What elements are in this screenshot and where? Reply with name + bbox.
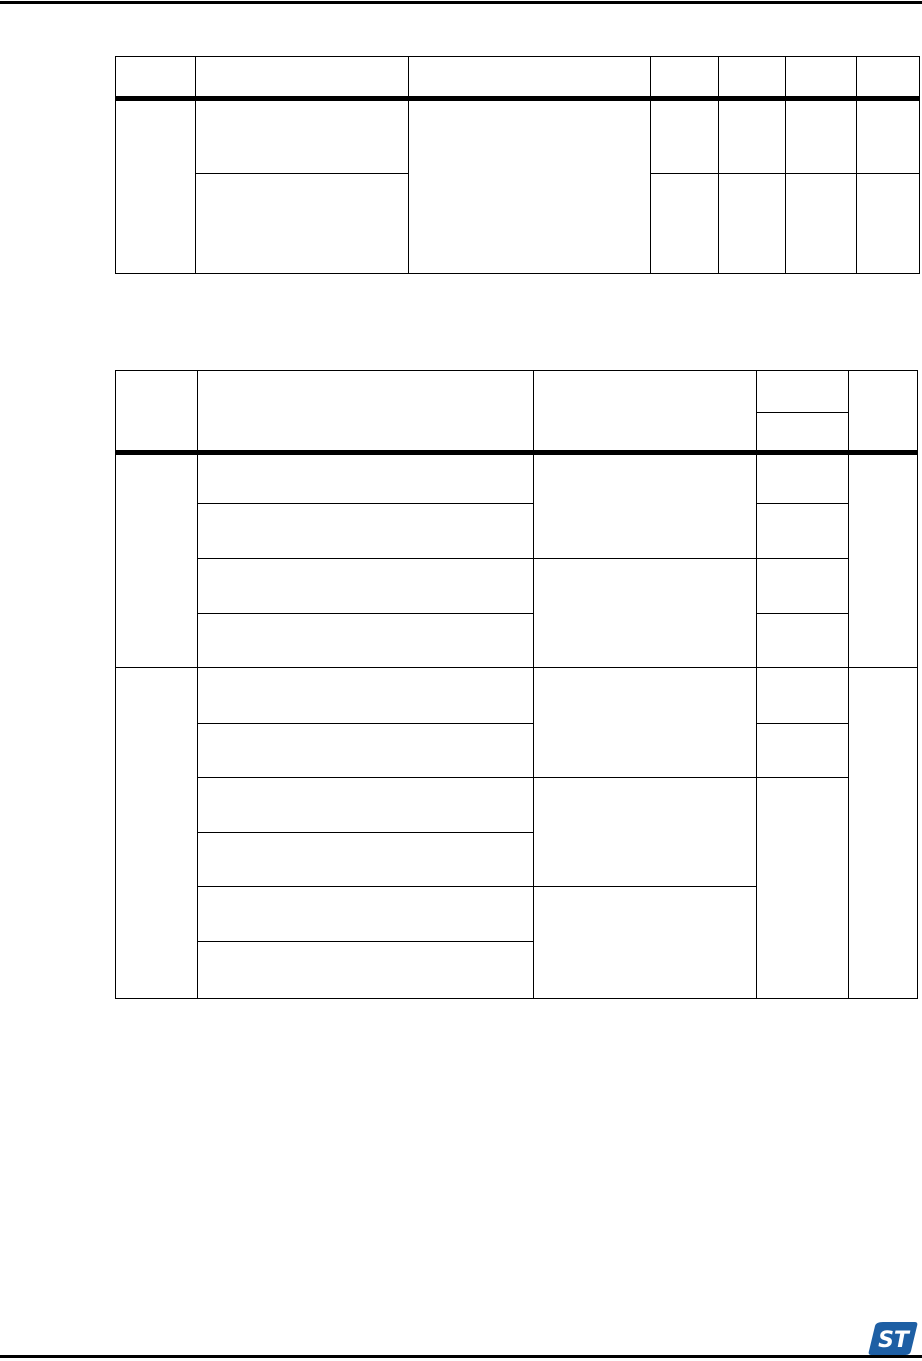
- table-cell: [757, 453, 849, 504]
- document-page: ST: [0, 0, 922, 1361]
- table-row: [116, 57, 920, 99]
- table-row: [116, 778, 918, 833]
- table-cell: [719, 174, 786, 274]
- table-cell: [196, 99, 409, 174]
- table-row: [116, 453, 918, 504]
- table-cell: [651, 174, 719, 274]
- table-header-cell: [857, 57, 920, 99]
- table-header-cell: [409, 57, 651, 99]
- table-header-cell: [198, 371, 534, 453]
- table-cell: [719, 99, 786, 174]
- table-cell: [757, 724, 849, 778]
- table-cell: [198, 778, 534, 833]
- table-cell: [786, 174, 857, 274]
- st-logo-text: ST: [878, 1328, 911, 1353]
- table-cell: [198, 942, 534, 999]
- table-cell: [198, 559, 534, 614]
- table-cell: [857, 174, 920, 274]
- table-header-cell: [534, 371, 757, 453]
- table-cell: [198, 724, 534, 778]
- table-cell: [116, 99, 196, 274]
- table-row: [116, 504, 918, 559]
- table-cell: [534, 453, 757, 559]
- table-cell: [116, 668, 198, 999]
- table-row: [116, 371, 918, 413]
- lower-table: [115, 370, 918, 999]
- table-header-cell: [786, 57, 857, 99]
- table-cell: [534, 559, 757, 668]
- table-cell: [757, 778, 849, 999]
- table-header-cell: [757, 413, 849, 453]
- page-footer-rule: [0, 1355, 922, 1358]
- upper-table: [115, 56, 920, 274]
- table-cell: [786, 99, 857, 174]
- table-cell: [198, 614, 534, 668]
- st-logo-icon: ST: [868, 1322, 918, 1355]
- table-cell: [196, 174, 409, 274]
- table-cell: [757, 504, 849, 559]
- table-cell: [409, 99, 651, 274]
- table-cell: [534, 668, 757, 778]
- table-row: [116, 724, 918, 778]
- table-cell: [116, 453, 198, 668]
- table-header-cell: [757, 371, 849, 413]
- table-cell: [757, 668, 849, 724]
- table-header-cell: [719, 57, 786, 99]
- table-cell: [651, 99, 719, 174]
- table-row: [116, 559, 918, 614]
- table-header-cell: [116, 57, 196, 99]
- table-row: [116, 99, 920, 174]
- table-cell: [198, 887, 534, 942]
- table-cell: [849, 668, 918, 999]
- table-cell: [757, 614, 849, 668]
- table-cell: [534, 887, 757, 999]
- table-header-cell: [849, 371, 918, 453]
- table-cell: [534, 778, 757, 887]
- table-cell: [757, 559, 849, 614]
- table-row: [116, 614, 918, 668]
- page-header-rule: [0, 1, 922, 4]
- table-cell: [198, 504, 534, 559]
- table-cell: [849, 453, 918, 668]
- table-header-cell: [196, 57, 409, 99]
- table-cell: [198, 668, 534, 724]
- table-cell: [198, 833, 534, 887]
- table-header-cell: [651, 57, 719, 99]
- table-row: [116, 668, 918, 724]
- table-header-cell: [116, 371, 198, 453]
- table-cell: [857, 99, 920, 174]
- table-cell: [198, 453, 534, 504]
